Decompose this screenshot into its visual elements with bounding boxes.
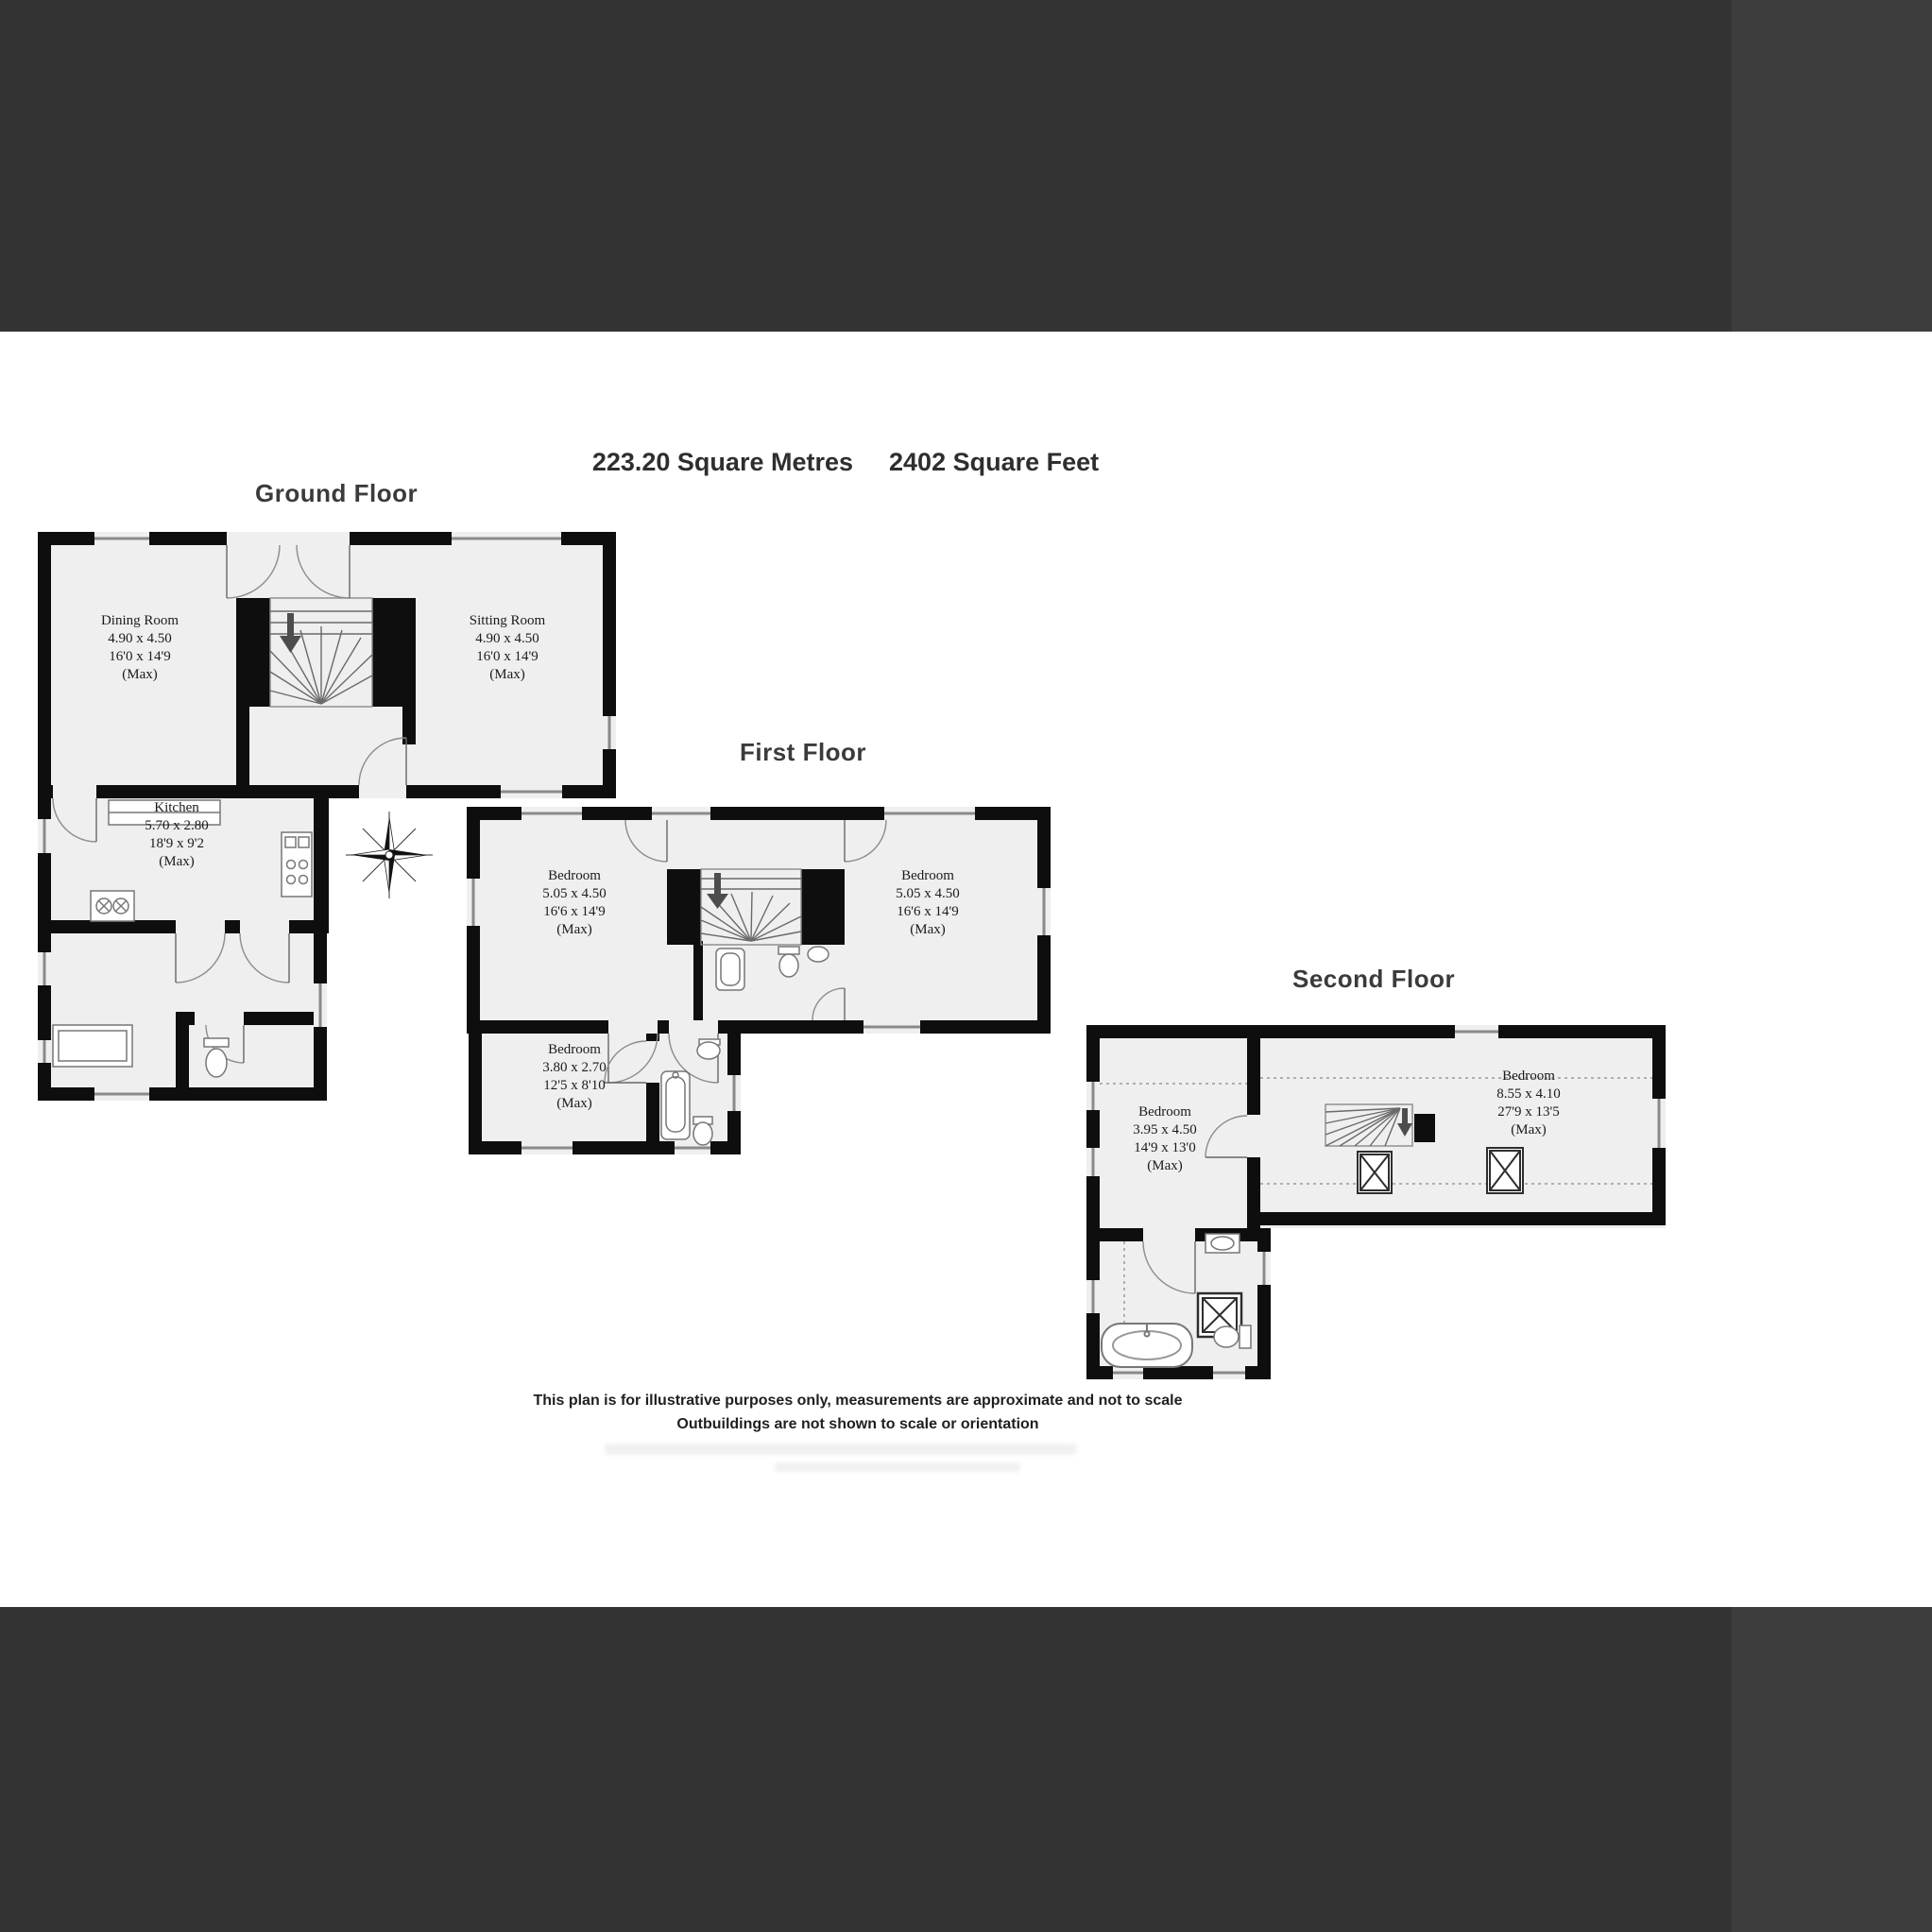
room-dim-qualifier: (Max) [1453, 1121, 1604, 1139]
room-dim-qualifier: (Max) [499, 1095, 650, 1113]
room-dim-qualifier: (Max) [852, 921, 1003, 939]
room-dim-imperial: 16'0 x 14'9 [441, 648, 573, 666]
room-dim-imperial: 27'9 x 13'5 [1453, 1103, 1604, 1121]
room-dim-imperial: 16'6 x 14'9 [499, 903, 650, 921]
room-name: Bedroom [852, 867, 1003, 885]
room-name: Bedroom [1099, 1103, 1231, 1121]
second-floor-title: Second Floor [1292, 965, 1455, 994]
room-label: Bedroom 3.80 x 2.70 12'5 x 8'10 (Max) [499, 1041, 650, 1113]
room-dim-qualifier: (Max) [101, 853, 252, 871]
room-dim-metric: 5.05 x 4.50 [852, 885, 1003, 903]
room-name: Kitchen [101, 799, 252, 817]
first-floor-title: First Floor [740, 738, 866, 767]
bottom-letterbox-bar [0, 1607, 1932, 1932]
area-summary: 223.20 Square Metres 2402 Square Feet [0, 448, 1691, 477]
room-dim-qualifier: (Max) [441, 666, 573, 684]
faint-watermark [605, 1444, 1077, 1455]
room-label: Bedroom 5.05 x 4.50 16'6 x 14'9 (Max) [852, 867, 1003, 939]
ground-floor-title: Ground Floor [255, 479, 418, 508]
room-name: Dining Room [74, 612, 206, 630]
room-label: Bedroom 5.05 x 4.50 16'6 x 14'9 (Max) [499, 867, 650, 939]
top-letterbox-bar [0, 0, 1932, 332]
room-dim-qualifier: (Max) [74, 666, 206, 684]
compass-rose-icon [346, 812, 433, 898]
disclaimer-line-1: This plan is for illustrative purposes o… [291, 1389, 1425, 1412]
room-dim-metric: 8.55 x 4.10 [1453, 1086, 1604, 1103]
room-label: Dining Room 4.90 x 4.50 16'0 x 14'9 (Max… [74, 612, 206, 684]
room-dim-metric: 3.95 x 4.50 [1099, 1121, 1231, 1139]
room-dim-imperial: 18'9 x 9'2 [101, 835, 252, 853]
room-name: Bedroom [499, 867, 650, 885]
room-label: Kitchen 5.70 x 2.80 18'9 x 9'2 (Max) [101, 799, 252, 871]
room-dim-metric: 5.05 x 4.50 [499, 885, 650, 903]
room-dim-imperial: 12'5 x 8'10 [499, 1077, 650, 1095]
area-metric: 223.20 Square Metres [592, 448, 853, 477]
area-imperial: 2402 Square Feet [889, 448, 1099, 477]
room-dim-imperial: 16'6 x 14'9 [852, 903, 1003, 921]
disclaimer: This plan is for illustrative purposes o… [291, 1389, 1425, 1436]
room-dim-metric: 5.70 x 2.80 [101, 817, 252, 835]
room-name: Sitting Room [441, 612, 573, 630]
room-dim-metric: 4.90 x 4.50 [441, 630, 573, 648]
room-name: Bedroom [1453, 1068, 1604, 1086]
room-dim-metric: 3.80 x 2.70 [499, 1059, 650, 1077]
room-dim-imperial: 14'9 x 13'0 [1099, 1139, 1231, 1157]
room-label: Sitting Room 4.90 x 4.50 16'0 x 14'9 (Ma… [441, 612, 573, 684]
room-label: Bedroom 3.95 x 4.50 14'9 x 13'0 (Max) [1099, 1103, 1231, 1175]
room-dim-qualifier: (Max) [499, 921, 650, 939]
room-dim-metric: 4.90 x 4.50 [74, 630, 206, 648]
disclaimer-line-2: Outbuildings are not shown to scale or o… [291, 1412, 1425, 1436]
room-label: Bedroom 8.55 x 4.10 27'9 x 13'5 (Max) [1453, 1068, 1604, 1139]
room-dim-imperial: 16'0 x 14'9 [74, 648, 206, 666]
room-dim-qualifier: (Max) [1099, 1157, 1231, 1175]
faint-watermark [775, 1462, 1020, 1472]
room-name: Bedroom [499, 1041, 650, 1059]
